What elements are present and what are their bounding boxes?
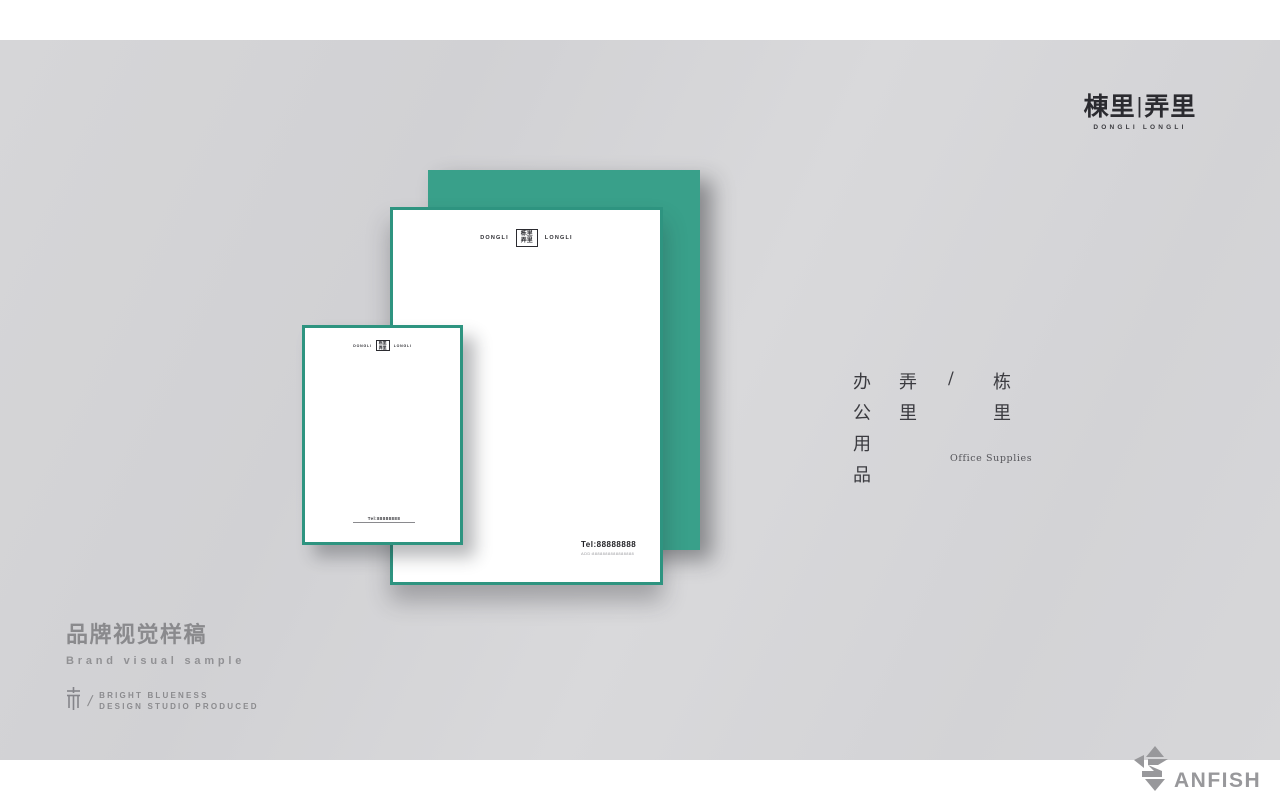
studio-credit-line1: BRIGHT BLUENESS	[99, 691, 208, 700]
studio-credit-line2: DESIGN STUDIO PRODUCED	[99, 702, 259, 711]
letterhead-small-header: DONGLI 栋里 弄里 LONGLI	[305, 340, 460, 351]
sanfish-s-icon	[1132, 744, 1178, 797]
letterhead-small: DONGLI 栋里 弄里 LONGLI Tel:88888888	[302, 325, 463, 545]
brand-logo-characters: 棟里|弄里	[1078, 94, 1202, 121]
letterhead-header-left-label: DONGLI	[480, 235, 509, 241]
studio-credit-text: BRIGHT BLUENESS DESIGN STUDIO PRODUCED	[99, 690, 259, 712]
letterhead-header-left-label: DONGLI	[353, 344, 371, 348]
footer-info-block: 品牌视觉样稿 Brand visual sample / BRIGHT BL	[66, 617, 259, 715]
brand-logo-divider: |	[1136, 93, 1145, 118]
studio-slash: /	[86, 693, 94, 710]
sanfish-watermark: ANFISH	[1132, 744, 1261, 797]
vertical-text-office-supplies: 办 公 用 品	[853, 367, 871, 491]
brand-logo-subtitle: DONGLI LONGLI	[1078, 124, 1202, 131]
tel-number: Tel:88888888	[581, 540, 656, 549]
tel-number: Tel:88888888	[353, 516, 415, 523]
seal-row2: 弄里	[379, 345, 387, 350]
vertical-char: 办	[853, 367, 871, 398]
office-supplies-caption: Office Supplies	[950, 453, 1032, 464]
brand-logo-left: 棟里	[1084, 93, 1136, 121]
studio-credit-row: / BRIGHT BLUENESS DESIGN STUDIO PRODUCED	[66, 687, 259, 715]
brand-logo: 棟里|弄里 DONGLI LONGLI	[1078, 94, 1202, 131]
vertical-char: 弄	[899, 367, 917, 398]
address-line: ADD:8888888888888888	[581, 551, 656, 556]
seal-row1: 栋里	[521, 231, 533, 237]
side-caption-block: 办 公 用 品 弄 里 / 栋 里 Office Supplies	[845, 363, 1035, 493]
vertical-char: 品	[853, 460, 871, 491]
vertical-text-dongli: 栋 里	[993, 367, 1011, 429]
letterhead-large-contact: Tel:88888888 ADD:8888888888888888	[581, 540, 656, 556]
letterhead-header-right-label: LONGLI	[545, 235, 573, 241]
seal-row2: 弄里	[521, 238, 533, 244]
brand-logo-right: 弄里	[1144, 93, 1196, 121]
letterhead-large-header: DONGLI 栋里 弄里 LONGLI	[393, 229, 660, 247]
vertical-text-longli: 弄 里	[899, 367, 917, 429]
poster-page: 棟里|弄里 DONGLI LONGLI DONGLI 栋里 弄里 LONGLI …	[0, 0, 1280, 800]
page-title: 品牌视觉样稿	[66, 617, 259, 649]
vertical-char: 公	[853, 398, 871, 429]
vertical-char: 里	[899, 398, 917, 429]
sanfish-wordmark: ANFISH	[1174, 771, 1261, 791]
side-slash: /	[948, 369, 954, 389]
brand-seal-icon: 栋里 弄里	[516, 229, 538, 247]
page-subtitle: Brand visual sample	[66, 655, 259, 667]
vertical-char: 栋	[993, 367, 1011, 398]
brand-seal-icon: 栋里 弄里	[376, 340, 390, 351]
vertical-char: 里	[993, 398, 1011, 429]
vertical-char: 用	[853, 429, 871, 460]
studio-mark-icon	[66, 687, 81, 715]
letterhead-small-contact: Tel:88888888	[353, 516, 415, 523]
letterhead-header-right-label: LONGLI	[394, 344, 412, 348]
